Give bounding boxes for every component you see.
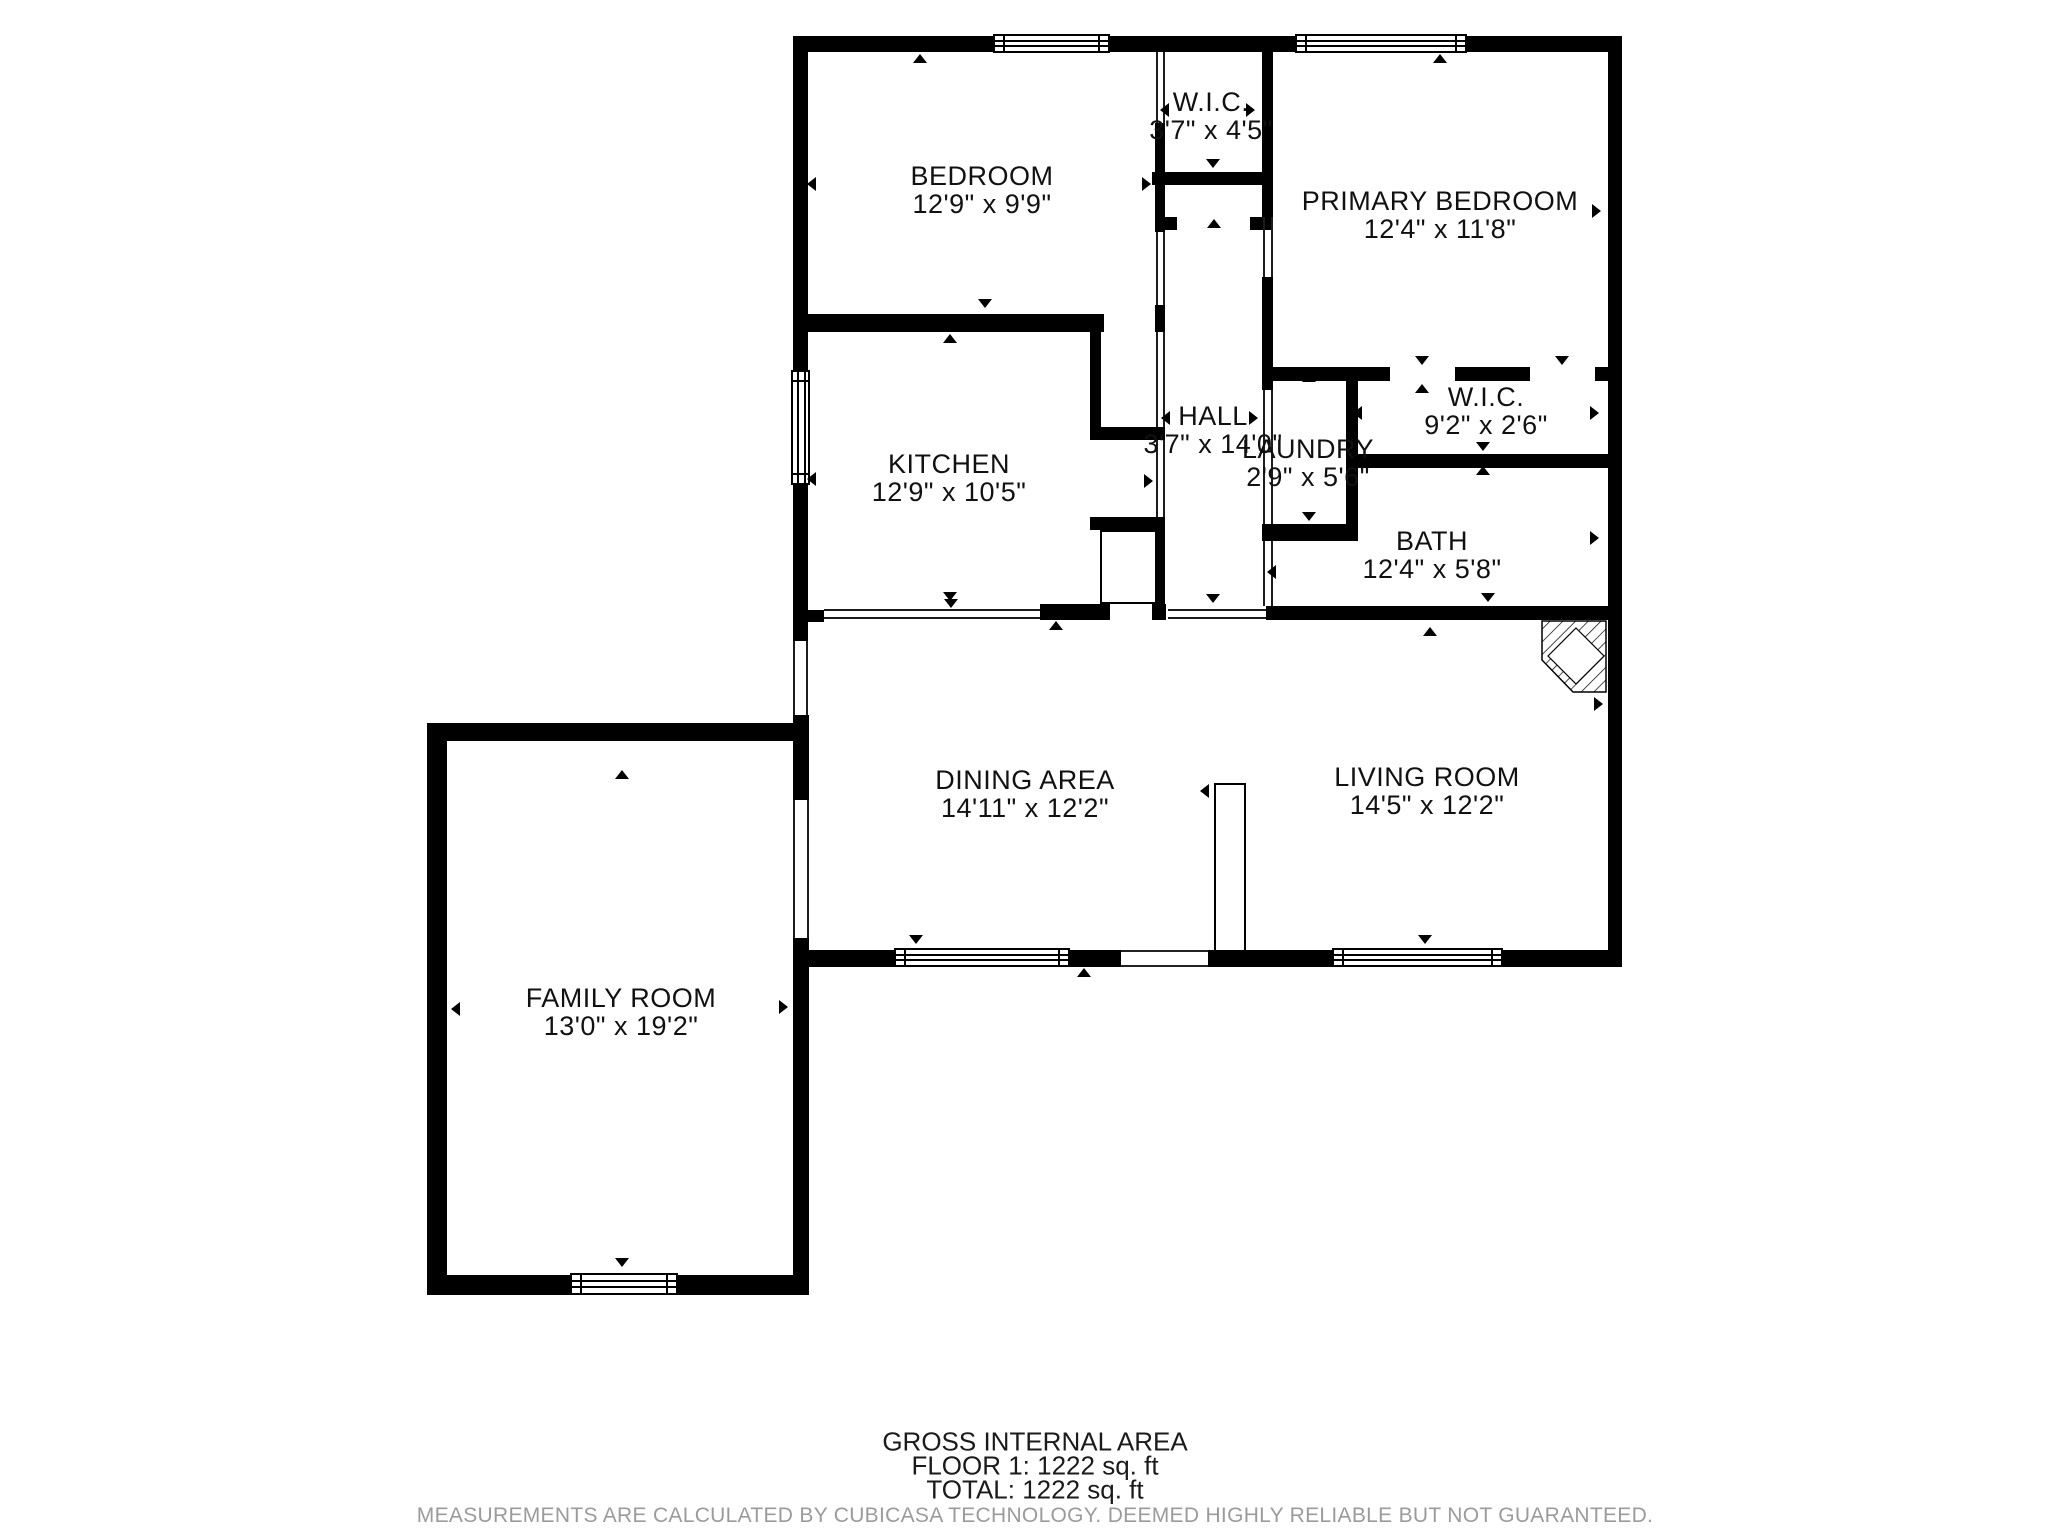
window-frame-line <box>995 45 1108 47</box>
dimension-arrow <box>1267 565 1276 579</box>
wall-line <box>824 617 1040 619</box>
room-label-dining-area: DINING AREA14'11" x 12'2" <box>935 766 1115 822</box>
window-frame-line <box>804 372 806 483</box>
dimension-arrow <box>1594 697 1603 711</box>
wall <box>793 610 824 622</box>
wall <box>1208 950 1332 967</box>
wall <box>1595 367 1622 381</box>
room-label-laundry: LAUNDRY2'9" x 5'6" <box>1242 435 1374 491</box>
window <box>791 370 810 485</box>
appliance-nook <box>1100 530 1157 604</box>
dimension-arrow <box>1433 54 1447 63</box>
wall-line <box>1263 541 1265 606</box>
window <box>1332 948 1503 967</box>
wall-line <box>824 609 1040 611</box>
entry-opening <box>1121 950 1208 967</box>
room-divider <box>1214 783 1246 952</box>
room-label-wic2: W.I.C.9'2" x 2'6" <box>1424 383 1548 439</box>
room-dims: 12'9" x 9'9" <box>910 190 1053 218</box>
wall-line <box>1156 232 1158 305</box>
window-frame-line <box>896 954 1068 956</box>
dimension-arrow <box>779 1000 788 1014</box>
dimension-arrow <box>1077 968 1091 977</box>
room-name: DINING AREA <box>935 766 1115 794</box>
dimension-arrow <box>1415 356 1429 365</box>
room-label-wic1: W.I.C.3'7" x 4'5" <box>1149 88 1273 144</box>
wall <box>1070 950 1121 967</box>
total-area-line: TOTAL: 1222 sq. ft <box>926 1475 1143 1506</box>
room-name: HALL <box>1143 402 1282 430</box>
room-dims: 14'11" x 12'2" <box>935 794 1115 822</box>
dimension-arrow <box>1590 406 1599 420</box>
wall <box>797 950 894 967</box>
wall-line <box>793 641 795 715</box>
wall-line <box>1163 232 1165 305</box>
wall-line <box>1271 217 1273 277</box>
dimension-arrow <box>1302 512 1316 521</box>
dimension-arrow <box>978 299 992 308</box>
dimension-arrow <box>1206 159 1220 168</box>
wall <box>793 715 809 800</box>
dimension-arrow <box>913 54 927 63</box>
dimension-arrow <box>807 177 816 191</box>
room-label-family-room: FAMILY ROOM13'0" x 19'2" <box>526 984 717 1040</box>
wall-line <box>1168 609 1266 611</box>
dimension-arrow <box>1418 935 1432 944</box>
dimension-arrow <box>1206 594 1220 603</box>
dimension-arrow <box>807 472 816 486</box>
dimension-arrow <box>1049 621 1063 630</box>
room-name: FAMILY ROOM <box>526 984 717 1012</box>
wall <box>1040 604 1110 620</box>
wall <box>1090 332 1101 433</box>
wall <box>1090 517 1165 530</box>
wall <box>427 723 447 1295</box>
floor-plan-canvas: BEDROOM12'9" x 9'9"W.I.C.3'7" x 4'5"PRIM… <box>0 0 2048 1536</box>
dimension-arrow <box>1590 531 1599 545</box>
window-frame-line <box>1305 36 1307 51</box>
wall <box>1262 524 1358 541</box>
window-frame-line <box>995 40 1108 42</box>
window-frame-line <box>1297 45 1465 47</box>
window-frame-line <box>1455 36 1457 51</box>
wall <box>1467 36 1622 52</box>
room-name: LIVING ROOM <box>1334 763 1520 791</box>
dimension-arrow <box>615 1258 629 1267</box>
window-frame-line <box>896 959 1068 961</box>
room-dims: 12'4" x 11'8" <box>1302 215 1579 243</box>
wall-line <box>806 641 808 715</box>
fireplace-icon <box>1540 618 1610 694</box>
wall <box>1455 367 1530 381</box>
wall <box>793 36 993 52</box>
room-label-bath: BATH12'4" x 5'8" <box>1362 527 1501 583</box>
wall-line <box>793 800 795 938</box>
dimension-arrow <box>1423 627 1437 636</box>
dimension-arrow <box>615 770 629 779</box>
dimension-arrow <box>943 334 957 343</box>
window-frame-line <box>572 1280 676 1282</box>
wall <box>1158 217 1177 230</box>
room-name: W.I.C. <box>1149 88 1273 116</box>
wall <box>1152 172 1266 185</box>
window-frame-line <box>797 372 799 483</box>
dimension-arrow <box>1207 219 1221 228</box>
dimension-arrow <box>1302 373 1316 382</box>
room-name: W.I.C. <box>1424 383 1548 411</box>
wall-line <box>1168 617 1266 619</box>
wall <box>1155 305 1165 332</box>
window-frame-line <box>572 1286 676 1288</box>
wall-line <box>807 800 809 938</box>
dimension-arrow <box>451 1002 460 1016</box>
wall <box>1250 217 1273 230</box>
dimension-arrow <box>909 935 923 944</box>
room-name: BEDROOM <box>910 162 1053 190</box>
window-frame-line <box>1334 954 1501 956</box>
window-frame-line <box>666 1275 668 1293</box>
wall <box>1110 36 1295 52</box>
room-dims: 13'0" x 19'2" <box>526 1012 717 1040</box>
window-frame-line <box>1098 36 1100 51</box>
dimension-arrow <box>1476 466 1490 475</box>
wall <box>793 938 809 1275</box>
wall <box>1358 454 1622 468</box>
window-frame-line <box>1334 959 1501 961</box>
wall <box>793 314 1104 332</box>
room-label-primary-bedroom: PRIMARY BEDROOM12'4" x 11'8" <box>1302 187 1579 243</box>
window <box>993 34 1110 53</box>
dimension-arrow <box>944 599 958 608</box>
room-name: LAUNDRY <box>1242 435 1374 463</box>
dimension-arrow <box>1353 406 1362 420</box>
window-frame-line <box>580 1275 582 1293</box>
dimension-arrow <box>1142 177 1151 191</box>
window <box>570 1273 678 1295</box>
window-frame-line <box>1491 950 1493 965</box>
window-frame-line <box>1003 36 1005 51</box>
wall <box>678 1275 809 1295</box>
dimension-arrow <box>1481 593 1495 602</box>
window-frame-line <box>1297 40 1465 42</box>
room-dims: 9'2" x 2'6" <box>1424 411 1548 439</box>
window <box>894 948 1070 967</box>
room-dims: 14'5" x 12'2" <box>1334 791 1520 819</box>
window-frame-line <box>1058 950 1060 965</box>
room-label-living-room: LIVING ROOM14'5" x 12'2" <box>1334 763 1520 819</box>
room-name: PRIMARY BEDROOM <box>1302 187 1579 215</box>
room-dims: 12'4" x 5'8" <box>1362 555 1501 583</box>
dimension-arrow <box>1200 784 1209 798</box>
room-dims: 12'9" x 10'5" <box>872 478 1027 506</box>
dimension-arrow <box>1555 356 1569 365</box>
room-label-kitchen: KITCHEN12'9" x 10'5" <box>872 450 1027 506</box>
window-frame-line <box>793 473 808 475</box>
room-name: KITCHEN <box>872 450 1027 478</box>
dimension-arrow <box>1592 204 1601 218</box>
wall <box>1608 36 1622 967</box>
window-frame-line <box>904 950 906 965</box>
wall <box>1262 367 1390 381</box>
dimension-arrow <box>1476 442 1490 451</box>
window <box>1295 34 1467 53</box>
wall <box>427 723 809 741</box>
disclaimer-text: MEASUREMENTS ARE CALCULATED BY CUBICASA … <box>417 1504 1653 1528</box>
wall <box>1503 950 1622 967</box>
room-dims: 3'7" x 4'5" <box>1149 116 1273 144</box>
dimension-arrow <box>1144 474 1153 488</box>
room-name: BATH <box>1362 527 1501 555</box>
wall <box>427 1275 570 1295</box>
room-label-bedroom: BEDROOM12'9" x 9'9" <box>910 162 1053 218</box>
window-frame-line <box>1342 950 1344 965</box>
window-frame-line <box>793 380 808 382</box>
room-dims: 2'9" x 5'6" <box>1242 463 1374 491</box>
wall-line <box>1263 217 1265 277</box>
